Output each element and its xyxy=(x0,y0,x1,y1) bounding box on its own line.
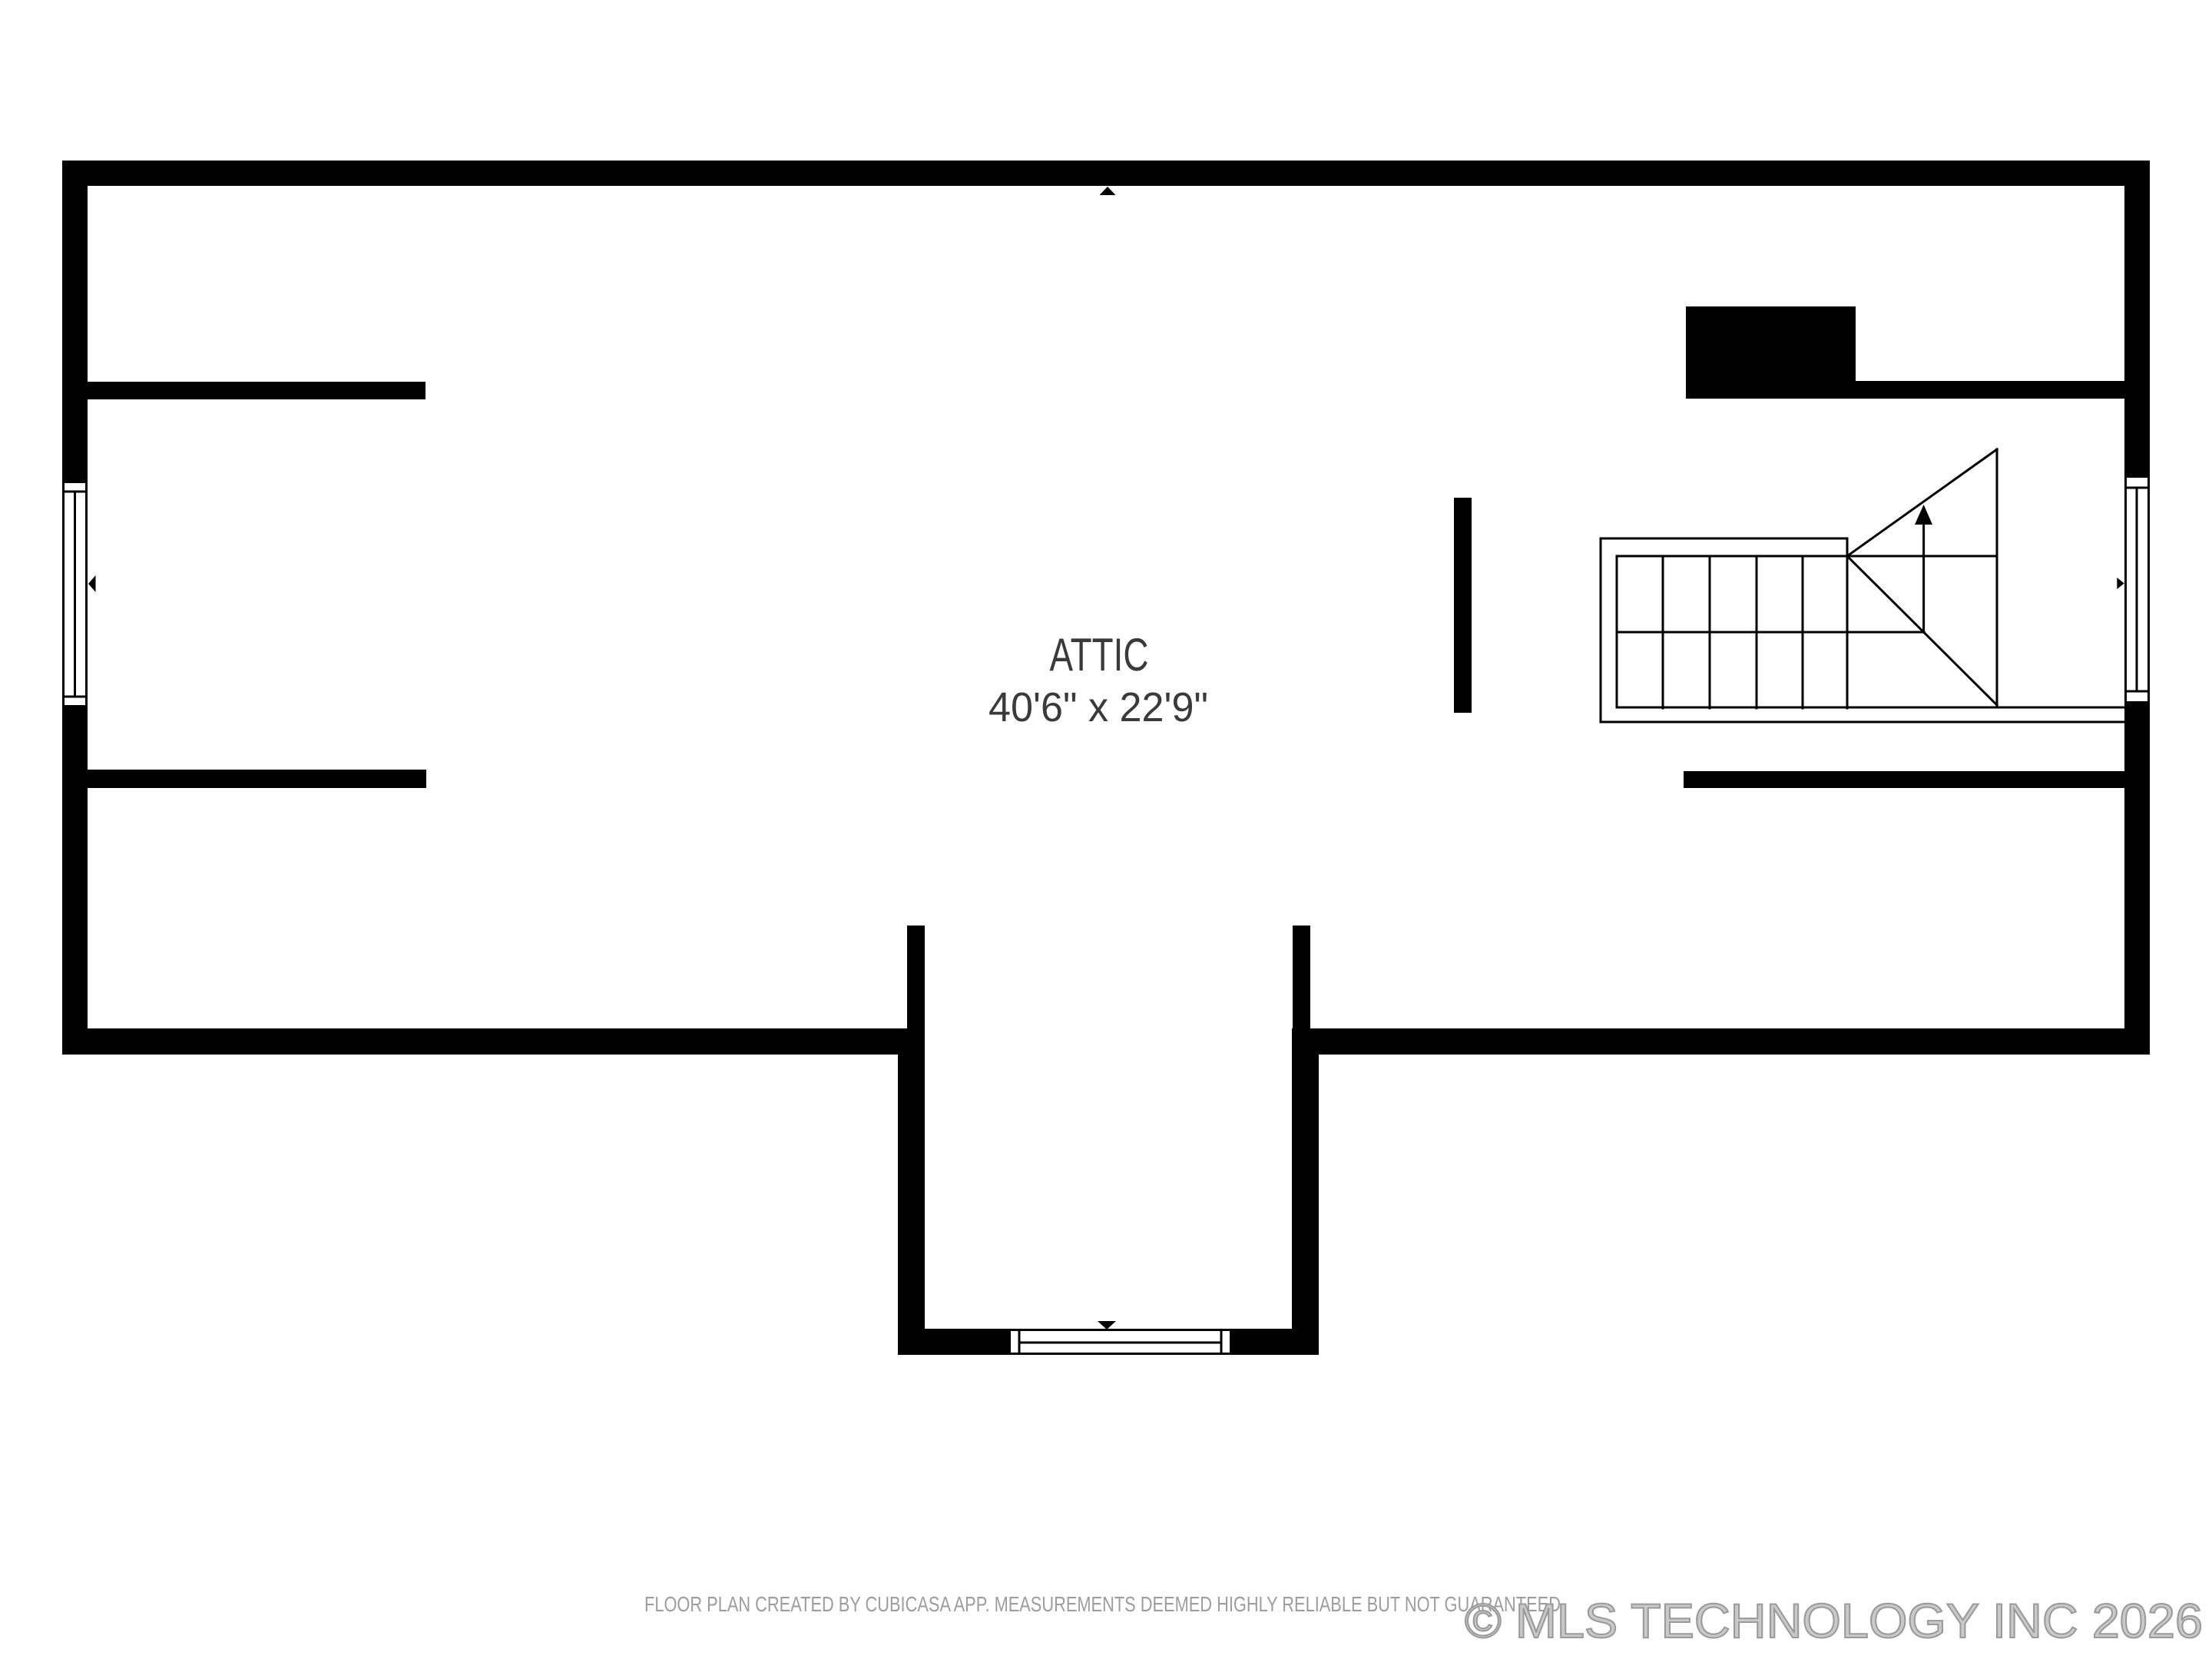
svg-text:40'6" x 22'9": 40'6" x 22'9" xyxy=(988,684,1208,730)
svg-text:FLOOR PLAN CREATED BY CUBICASA: FLOOR PLAN CREATED BY CUBICASA APP. MEAS… xyxy=(644,1592,1565,1616)
svg-text:© MLS TECHNOLOGY INC 2026: © MLS TECHNOLOGY INC 2026 xyxy=(1465,1594,2203,1648)
svg-text:ATTIC: ATTIC xyxy=(1050,629,1149,680)
